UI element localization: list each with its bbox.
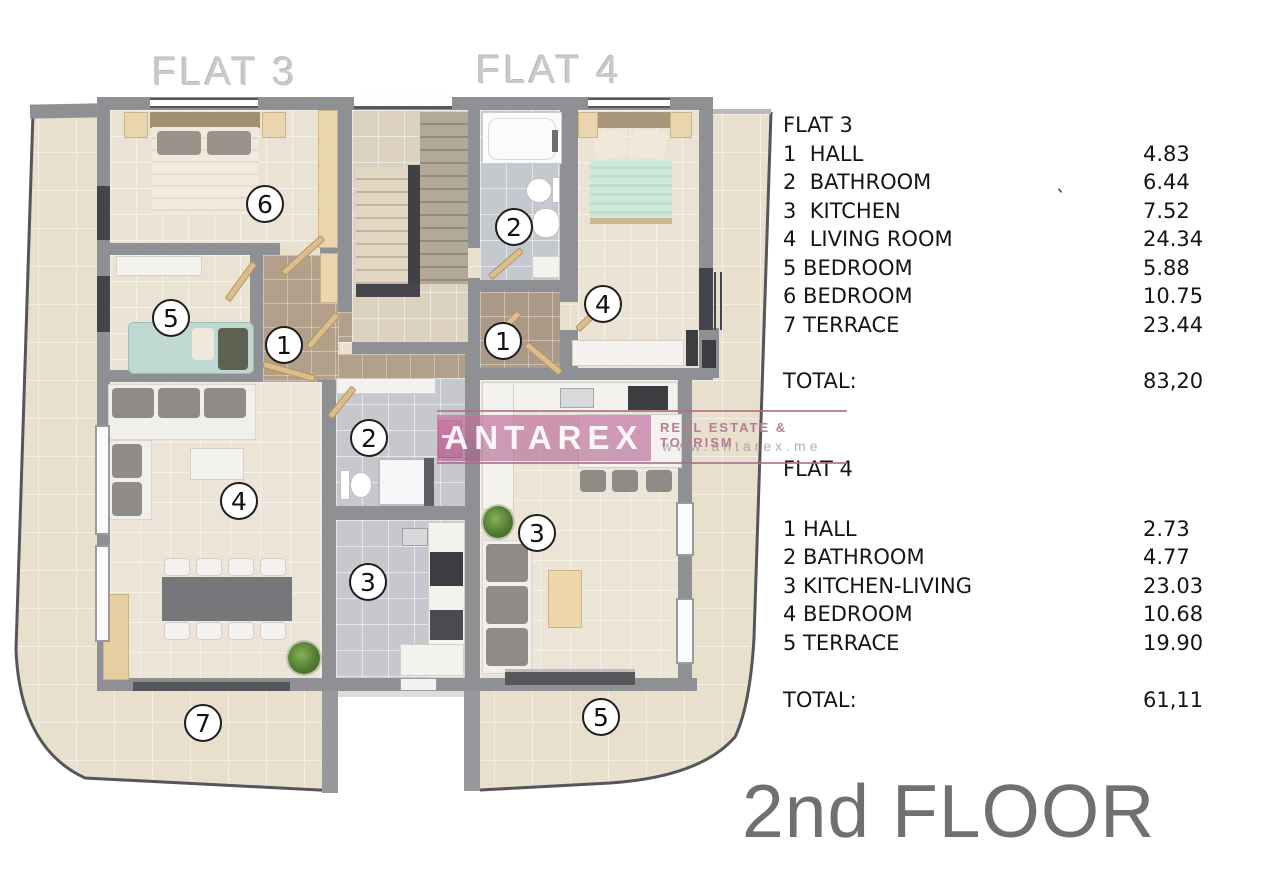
faucet-icon (552, 130, 558, 152)
sofa4-cushion (486, 628, 528, 666)
chair (196, 622, 222, 640)
bed5-pillow (192, 328, 214, 360)
room-row: 4 LIVING ROOM24.34 (783, 227, 1213, 255)
marker-flat3-5: 5 (152, 299, 190, 337)
window-left-living1 (95, 425, 110, 535)
panel-flat4-title: FLAT 4 (783, 457, 853, 481)
room-row: 1 HALL4.83 (783, 142, 1213, 170)
room-row: 3 KITCHEN-LIVING23.03 (783, 574, 1213, 602)
plant-icon (288, 642, 320, 674)
room-flat3-corridor (338, 354, 465, 380)
bed5-blanket (218, 328, 248, 370)
room-label: 5 BEDROOM (783, 256, 913, 280)
marker-flat3-6: 6 (246, 185, 284, 223)
room-label: 6 BEDROOM (783, 284, 913, 308)
room-area: 7.52 (1143, 199, 1190, 223)
watermark-band: ANTAREX (437, 415, 651, 461)
bed6-wardrobe (318, 110, 338, 248)
room-label: 4 BEDROOM (783, 602, 913, 626)
room-area: 6.44 (1143, 170, 1190, 194)
wall-bath3-kitchen (336, 506, 465, 520)
pillar-right (464, 691, 480, 791)
room-area: 24.34 (1143, 227, 1203, 251)
dining-table3 (162, 577, 292, 621)
balcony-door-bed4 (699, 268, 713, 330)
chair (164, 622, 190, 640)
marker-flat4-3: 3 (518, 514, 556, 552)
sofa3-cushion (112, 482, 142, 516)
room-area: 10.75 (1143, 284, 1203, 308)
bed6-pillow (157, 131, 201, 155)
sliding-door-terrace7 (133, 680, 290, 691)
sofa3-cushion (204, 388, 246, 418)
chair (260, 558, 286, 576)
room-area: 23.03 (1143, 574, 1203, 598)
window-right-living1 (676, 502, 694, 556)
stair-flight-up (356, 167, 408, 285)
wall-stair-left (338, 110, 352, 312)
chair (612, 470, 638, 492)
pillar-left (322, 691, 338, 793)
room-label: 3 KITCHEN-LIVING (783, 574, 972, 598)
panel-flat3-title: FLAT 3 (783, 113, 853, 137)
room-label: 2 BATHROOM (783, 545, 925, 569)
room-area: 4.77 (1143, 545, 1190, 569)
room-row: 4 BEDROOM10.68 (783, 602, 1213, 630)
marker-flat3-2: 2 (350, 419, 388, 457)
room-label: 2 BATHROOM (783, 170, 931, 194)
total-row: TOTAL:61,11 (783, 688, 1213, 716)
sofa3-cushion (158, 388, 200, 418)
bathtub-inner (488, 118, 556, 160)
watermark-url: www.antarex.me (662, 438, 862, 454)
bidet (532, 208, 560, 238)
hall-closet (320, 253, 338, 303)
window-left-bed5 (97, 276, 110, 332)
kitchen4-sink (560, 388, 594, 408)
stair-stringer (408, 165, 420, 297)
room-label: 7 TERRACE (783, 313, 899, 337)
total-label: TOTAL: (783, 369, 857, 393)
total-row: TOTAL:83,20 (783, 369, 1213, 397)
wall-stub-left (30, 103, 97, 118)
total-label: TOTAL: (783, 688, 857, 712)
kitchen3-sink (402, 528, 428, 546)
watermark-line-top (437, 410, 847, 412)
coffee-table4 (548, 570, 582, 628)
room-label: 5 TERRACE (783, 631, 899, 655)
bed5-shelf (116, 256, 202, 276)
toilet (526, 178, 552, 203)
room-area: 4.83 (1143, 142, 1190, 166)
sofa3-cushion (112, 388, 154, 418)
bath4-cabinet (532, 256, 560, 278)
watermark-brand: ANTAREX (444, 419, 643, 457)
chair (196, 558, 222, 576)
room-row: 5 TERRACE19.90 (783, 631, 1213, 659)
bed4-footboard (590, 218, 672, 224)
wall-bath4-bed4 (560, 110, 578, 302)
cooktop (430, 552, 463, 586)
bed4-dresser (572, 340, 684, 366)
bed4-nightstand (670, 112, 692, 138)
room-area: 10.68 (1143, 602, 1203, 626)
window-top-bed6 (150, 98, 258, 108)
floorplan-page: 6 5 1 2 4 3 7 2 4 1 3 5 FLAT 3 FLAT 4 AN… (0, 0, 1280, 877)
sliding-door-terrace5 (505, 669, 635, 685)
marker-flat4-5: 5 (582, 698, 620, 736)
bed4-pillow (593, 128, 630, 159)
room-label: 3 KITCHEN (783, 199, 901, 223)
plan-title-flat3: FLAT 3 (152, 50, 297, 95)
room-row: 7 TERRACE23.44 (783, 313, 1213, 341)
wall-stair-bottom (352, 342, 480, 354)
courtyard-shadow (338, 691, 464, 697)
bed6-nightstand (124, 112, 148, 138)
chair (228, 622, 254, 640)
chair (228, 558, 254, 576)
marker-flat4-4: 4 (584, 285, 622, 323)
room-area: 19.90 (1143, 631, 1203, 655)
wall-bath4-bottom (468, 280, 560, 292)
sofa4-cushion (486, 586, 528, 624)
total-area: 61,11 (1143, 688, 1203, 712)
window-left-bed6 (97, 186, 110, 240)
room-label: 1 HALL (783, 142, 863, 166)
bed4-double-bed (590, 160, 672, 218)
watermark-line-bottom (437, 462, 847, 464)
window-left-living2 (95, 545, 110, 642)
room-area: 2.73 (1143, 517, 1190, 541)
bed4-pillow (631, 129, 667, 160)
wall-stub-right (713, 109, 771, 114)
room-row: 3 KITCHEN7.52 (783, 199, 1213, 227)
room-area: 5.88 (1143, 256, 1190, 280)
total-area: 83,20 (1143, 369, 1203, 393)
chair (646, 470, 672, 492)
plan-title-flat4: FLAT 4 (476, 48, 621, 93)
oven (430, 610, 463, 640)
window-right-living2 (676, 598, 694, 664)
marker-flat4-1: 1 (484, 322, 522, 360)
cooktop (628, 386, 668, 410)
courtyard-door (400, 678, 437, 691)
chair (260, 622, 286, 640)
marker-flat4-2: 2 (495, 208, 533, 246)
wall-living3-right (322, 417, 336, 678)
kitchen3-lower-cabinet (400, 644, 464, 676)
chair (164, 558, 190, 576)
toilet-tank (340, 470, 350, 500)
tv-icon (686, 330, 698, 366)
stair-landing-edge (356, 284, 420, 297)
wall-bed6-bottom (110, 243, 280, 255)
floor-label: 2nd FLOOR (742, 768, 1172, 854)
bed6-pillow (207, 131, 251, 155)
marker-flat3-4: 4 (220, 482, 258, 520)
marker-flat3-1: 1 (265, 326, 303, 364)
coffee-table3 (190, 448, 244, 480)
room-row: 6 BEDROOM10.75 (783, 284, 1213, 312)
shower-panel (424, 458, 434, 506)
marker-flat3-3: 3 (349, 563, 387, 601)
room-row: 2 BATHROOM4.77 (783, 545, 1213, 573)
sofa4-cushion (486, 544, 528, 582)
toilet-tank (552, 177, 560, 203)
room-area: 23.44 (1143, 313, 1203, 337)
room-row: 2 BATHROOM6.44 (783, 170, 1213, 198)
balcony-railing (714, 272, 722, 330)
stray-mark: ` (1056, 186, 1066, 210)
plant-icon (483, 506, 513, 538)
room-row: 1 HALL2.73 (783, 517, 1213, 545)
watermark-glyph-icon (442, 435, 452, 438)
room-flat3-hall-doorway (338, 312, 352, 342)
vent-shaft (702, 340, 716, 368)
entry-door (354, 106, 452, 109)
bed4-nightstand (578, 112, 598, 138)
sofa3-cushion (112, 444, 142, 478)
room-label: 4 LIVING ROOM (783, 227, 953, 251)
room-row: 5 BEDROOM5.88 (783, 256, 1213, 284)
chair (580, 470, 606, 492)
marker-flat3-7: 7 (184, 704, 222, 742)
wall-bed4-bottom (465, 368, 713, 380)
stair-flight-down (420, 112, 468, 284)
bed6-nightstand (262, 112, 286, 138)
room-label: 1 HALL (783, 517, 857, 541)
window-top-bed4 (588, 98, 670, 108)
toilet (350, 472, 372, 498)
bed6-headboard (150, 112, 260, 128)
